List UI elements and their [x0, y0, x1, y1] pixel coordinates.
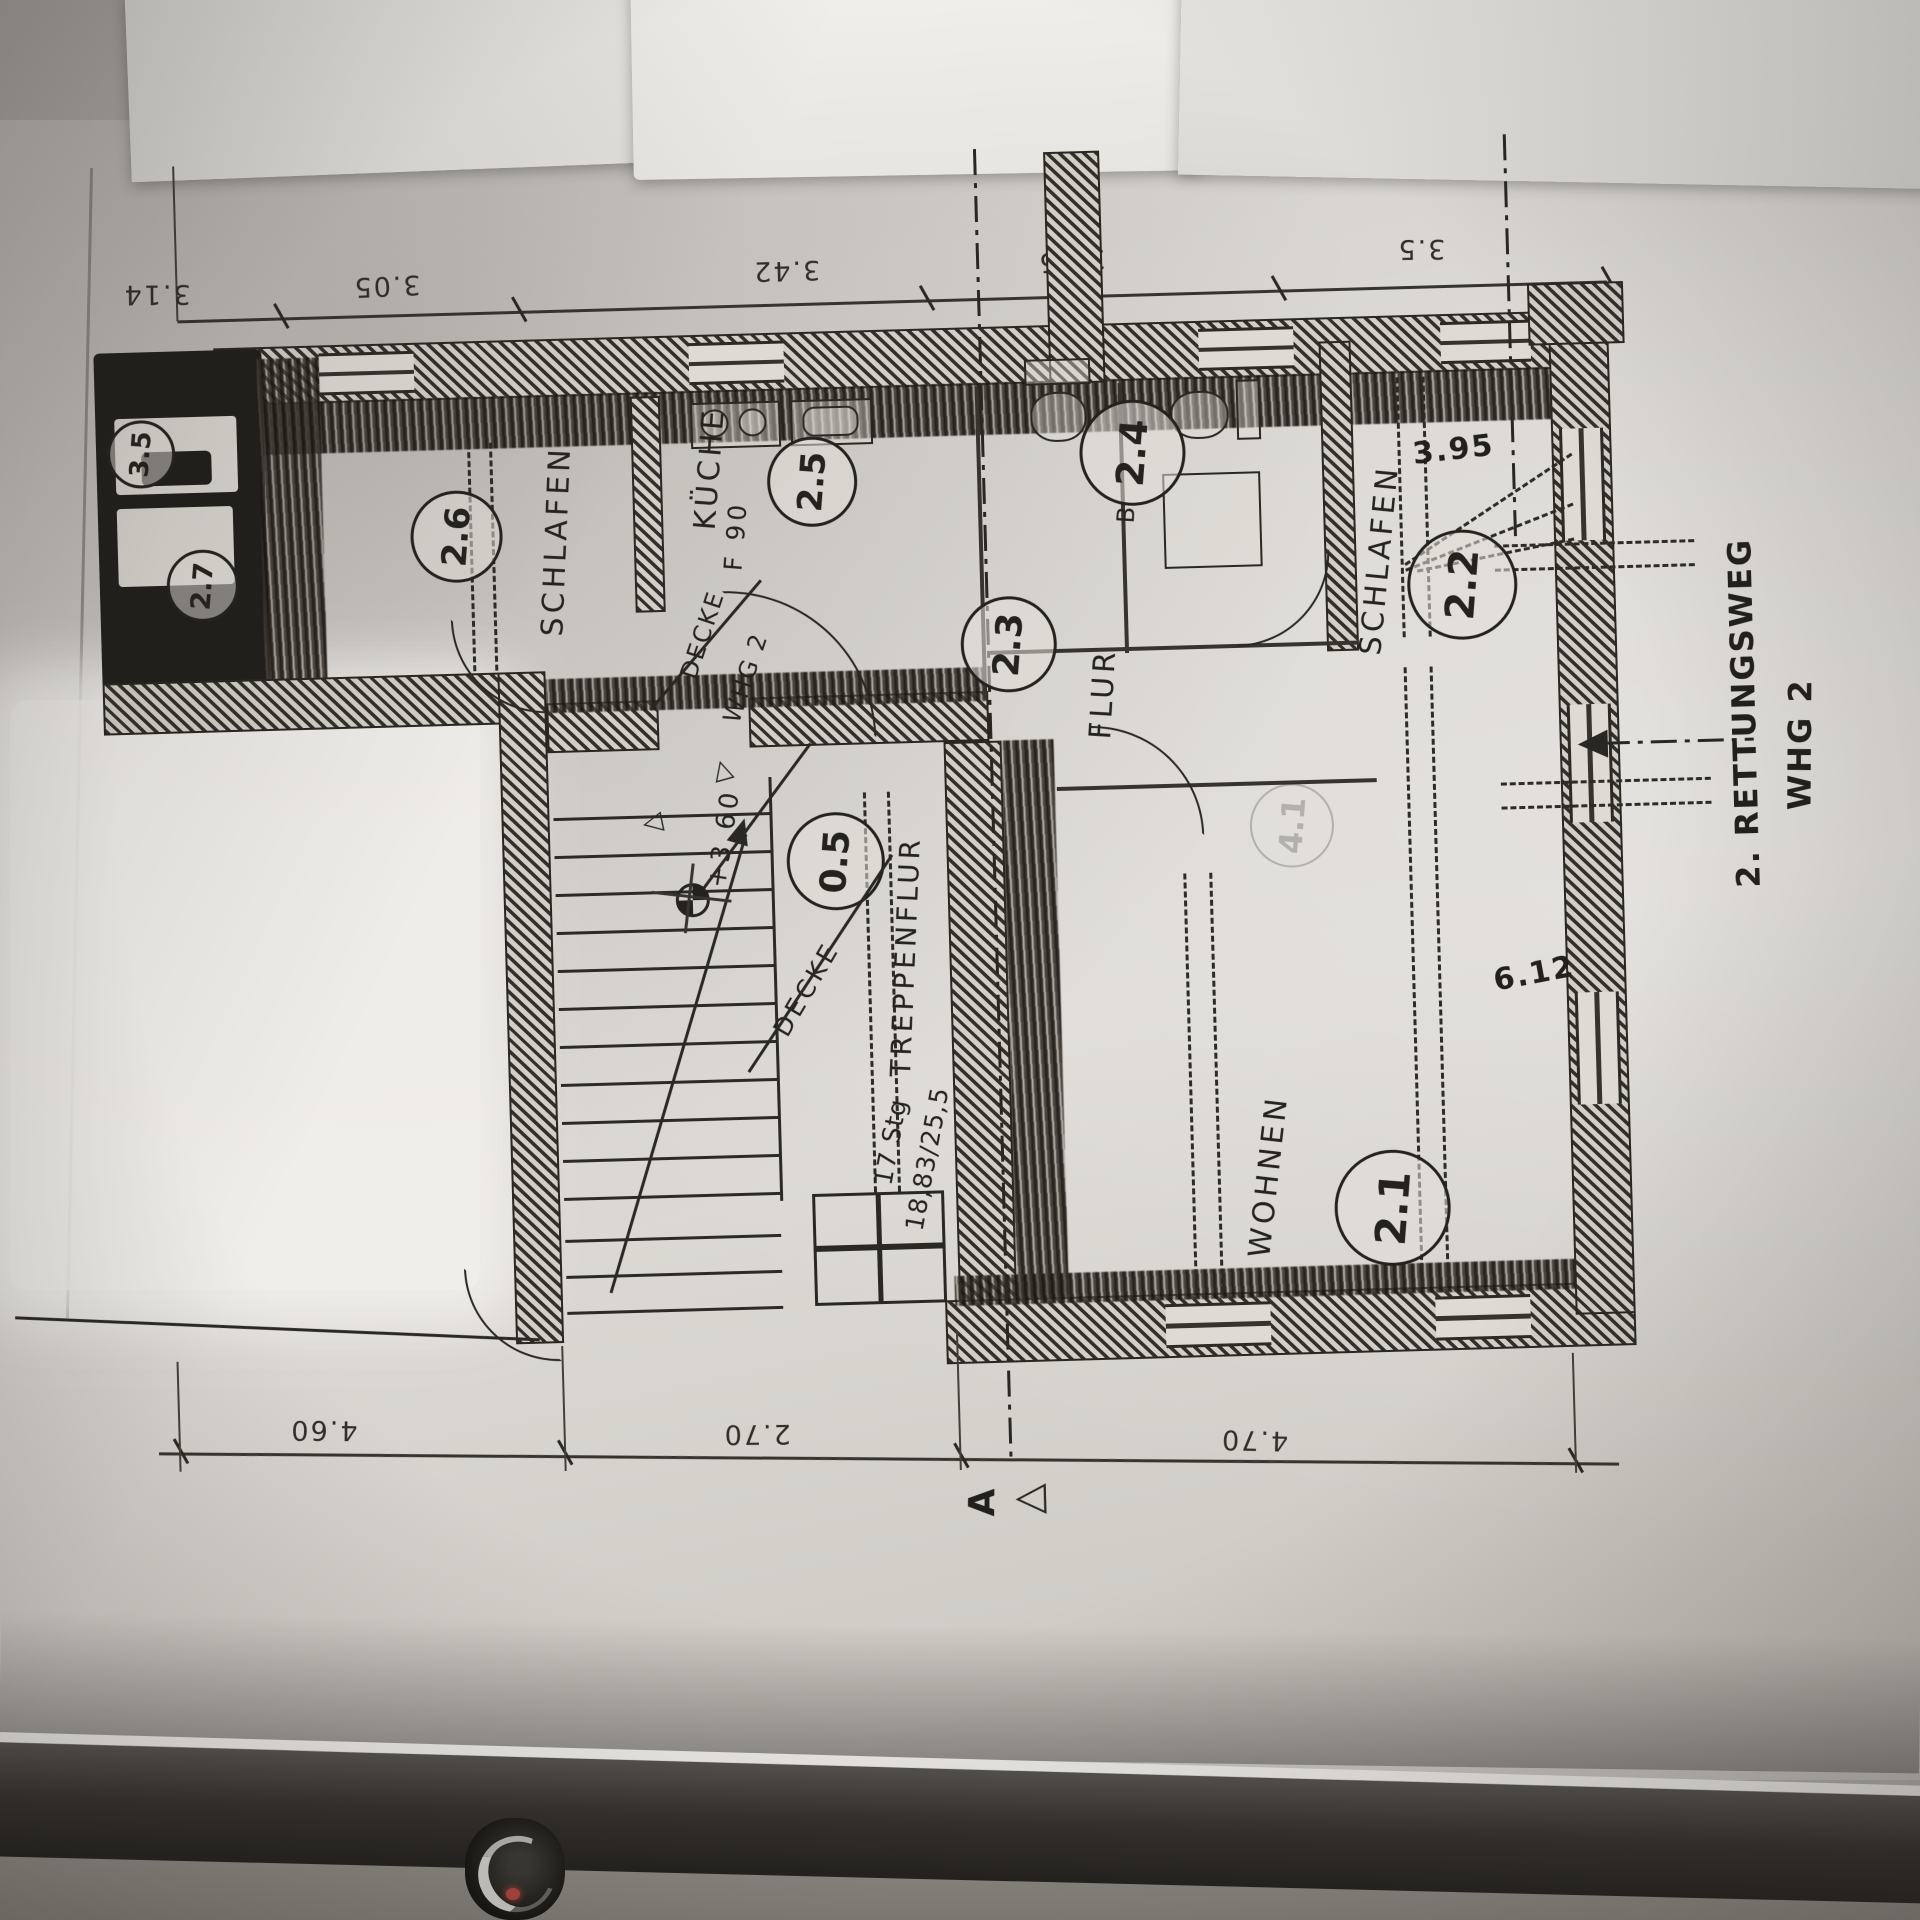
room-circle-2-6: 2.6 — [409, 489, 504, 584]
room-circle-4-1-faint: 4.1 — [1249, 782, 1335, 868]
stair-treads-lower — [564, 1201, 783, 1315]
dashed-line-wohnen-a — [1183, 873, 1198, 1293]
stair-outer-curve — [464, 1266, 562, 1364]
dashed-line-wohnen-b — [1209, 873, 1224, 1293]
terrace-edge-line — [15, 1316, 540, 1340]
window-south-1 — [1165, 1301, 1271, 1348]
bad-cistern — [1235, 379, 1261, 440]
dimension-tick — [511, 296, 527, 322]
note-rescue-whg: WHG 2 — [1780, 678, 1819, 810]
label-wohnen: WOHNEN — [1242, 1093, 1295, 1260]
dimension-tick — [1271, 275, 1287, 301]
section-marker-label: A — [962, 1486, 1003, 1516]
wall-schlafen-kueche — [630, 396, 666, 613]
window-east-1 — [1559, 428, 1606, 541]
hole-red-glint — [506, 1888, 520, 1900]
dimension-tick — [919, 285, 935, 311]
dimension-tick — [273, 303, 289, 329]
window-north-4 — [1440, 320, 1531, 364]
section-marker-triangle-icon: △ — [1005, 1483, 1052, 1515]
room-circle-2-1: 2.1 — [1333, 1148, 1452, 1267]
photo-of-floor-plan: 3.14 3.05 3.42 2.35 3.5 — [0, 0, 1920, 1920]
shower-tray — [1162, 471, 1263, 569]
window-north-3 — [1198, 326, 1294, 371]
wall-stub-chimney — [1043, 151, 1105, 384]
window-north-2 — [688, 340, 784, 385]
label-stair-count: 17 Stg — [868, 1096, 912, 1187]
dim-top-2: 3.05 — [352, 269, 421, 303]
window-north-1 — [318, 351, 414, 396]
label-schlafen-right: SCHLAFEN — [1353, 463, 1406, 657]
rescue-arrow-head — [1577, 730, 1608, 759]
room-circle-2-5: 2.5 — [766, 436, 858, 528]
window-east-3 — [1575, 991, 1622, 1104]
toilet-icon — [1030, 391, 1087, 443]
dim-top-5: 3.5 — [1396, 233, 1445, 265]
label-flur: FLUR — [1083, 647, 1123, 740]
room-circle-0-5: 0.5 — [785, 811, 886, 912]
wc-cistern — [1024, 358, 1091, 386]
dim-bottom-2: 2.70 — [723, 1418, 791, 1450]
dim-right-length: 6.12 — [1491, 949, 1578, 998]
label-bad-b: B — [1112, 502, 1141, 524]
note-rescue-route: 2. RETTUNGSWEG — [1720, 537, 1768, 888]
dimension-line-bottom — [159, 1452, 1619, 1465]
door-arc-wohnen — [1089, 723, 1204, 838]
corner-step-northeast — [1527, 281, 1625, 346]
dim-bottom-3: 4.70 — [1220, 1423, 1289, 1456]
label-schlafen-left: SCHLAFEN — [535, 445, 578, 637]
stairwell-wall-west — [497, 671, 564, 1344]
sink-basin-icon — [802, 405, 859, 437]
interior-wall-left-block — [257, 357, 329, 707]
dim-bottom-1: 4.60 — [289, 1414, 357, 1445]
window-south-2 — [1435, 1294, 1531, 1341]
label-kueche-f90: F 90 — [719, 500, 753, 572]
extension-line — [177, 1362, 182, 1472]
dim-top-1: 3.14 — [122, 278, 190, 310]
dim-top-3: 3.42 — [752, 254, 821, 287]
extension-line — [561, 1346, 566, 1471]
